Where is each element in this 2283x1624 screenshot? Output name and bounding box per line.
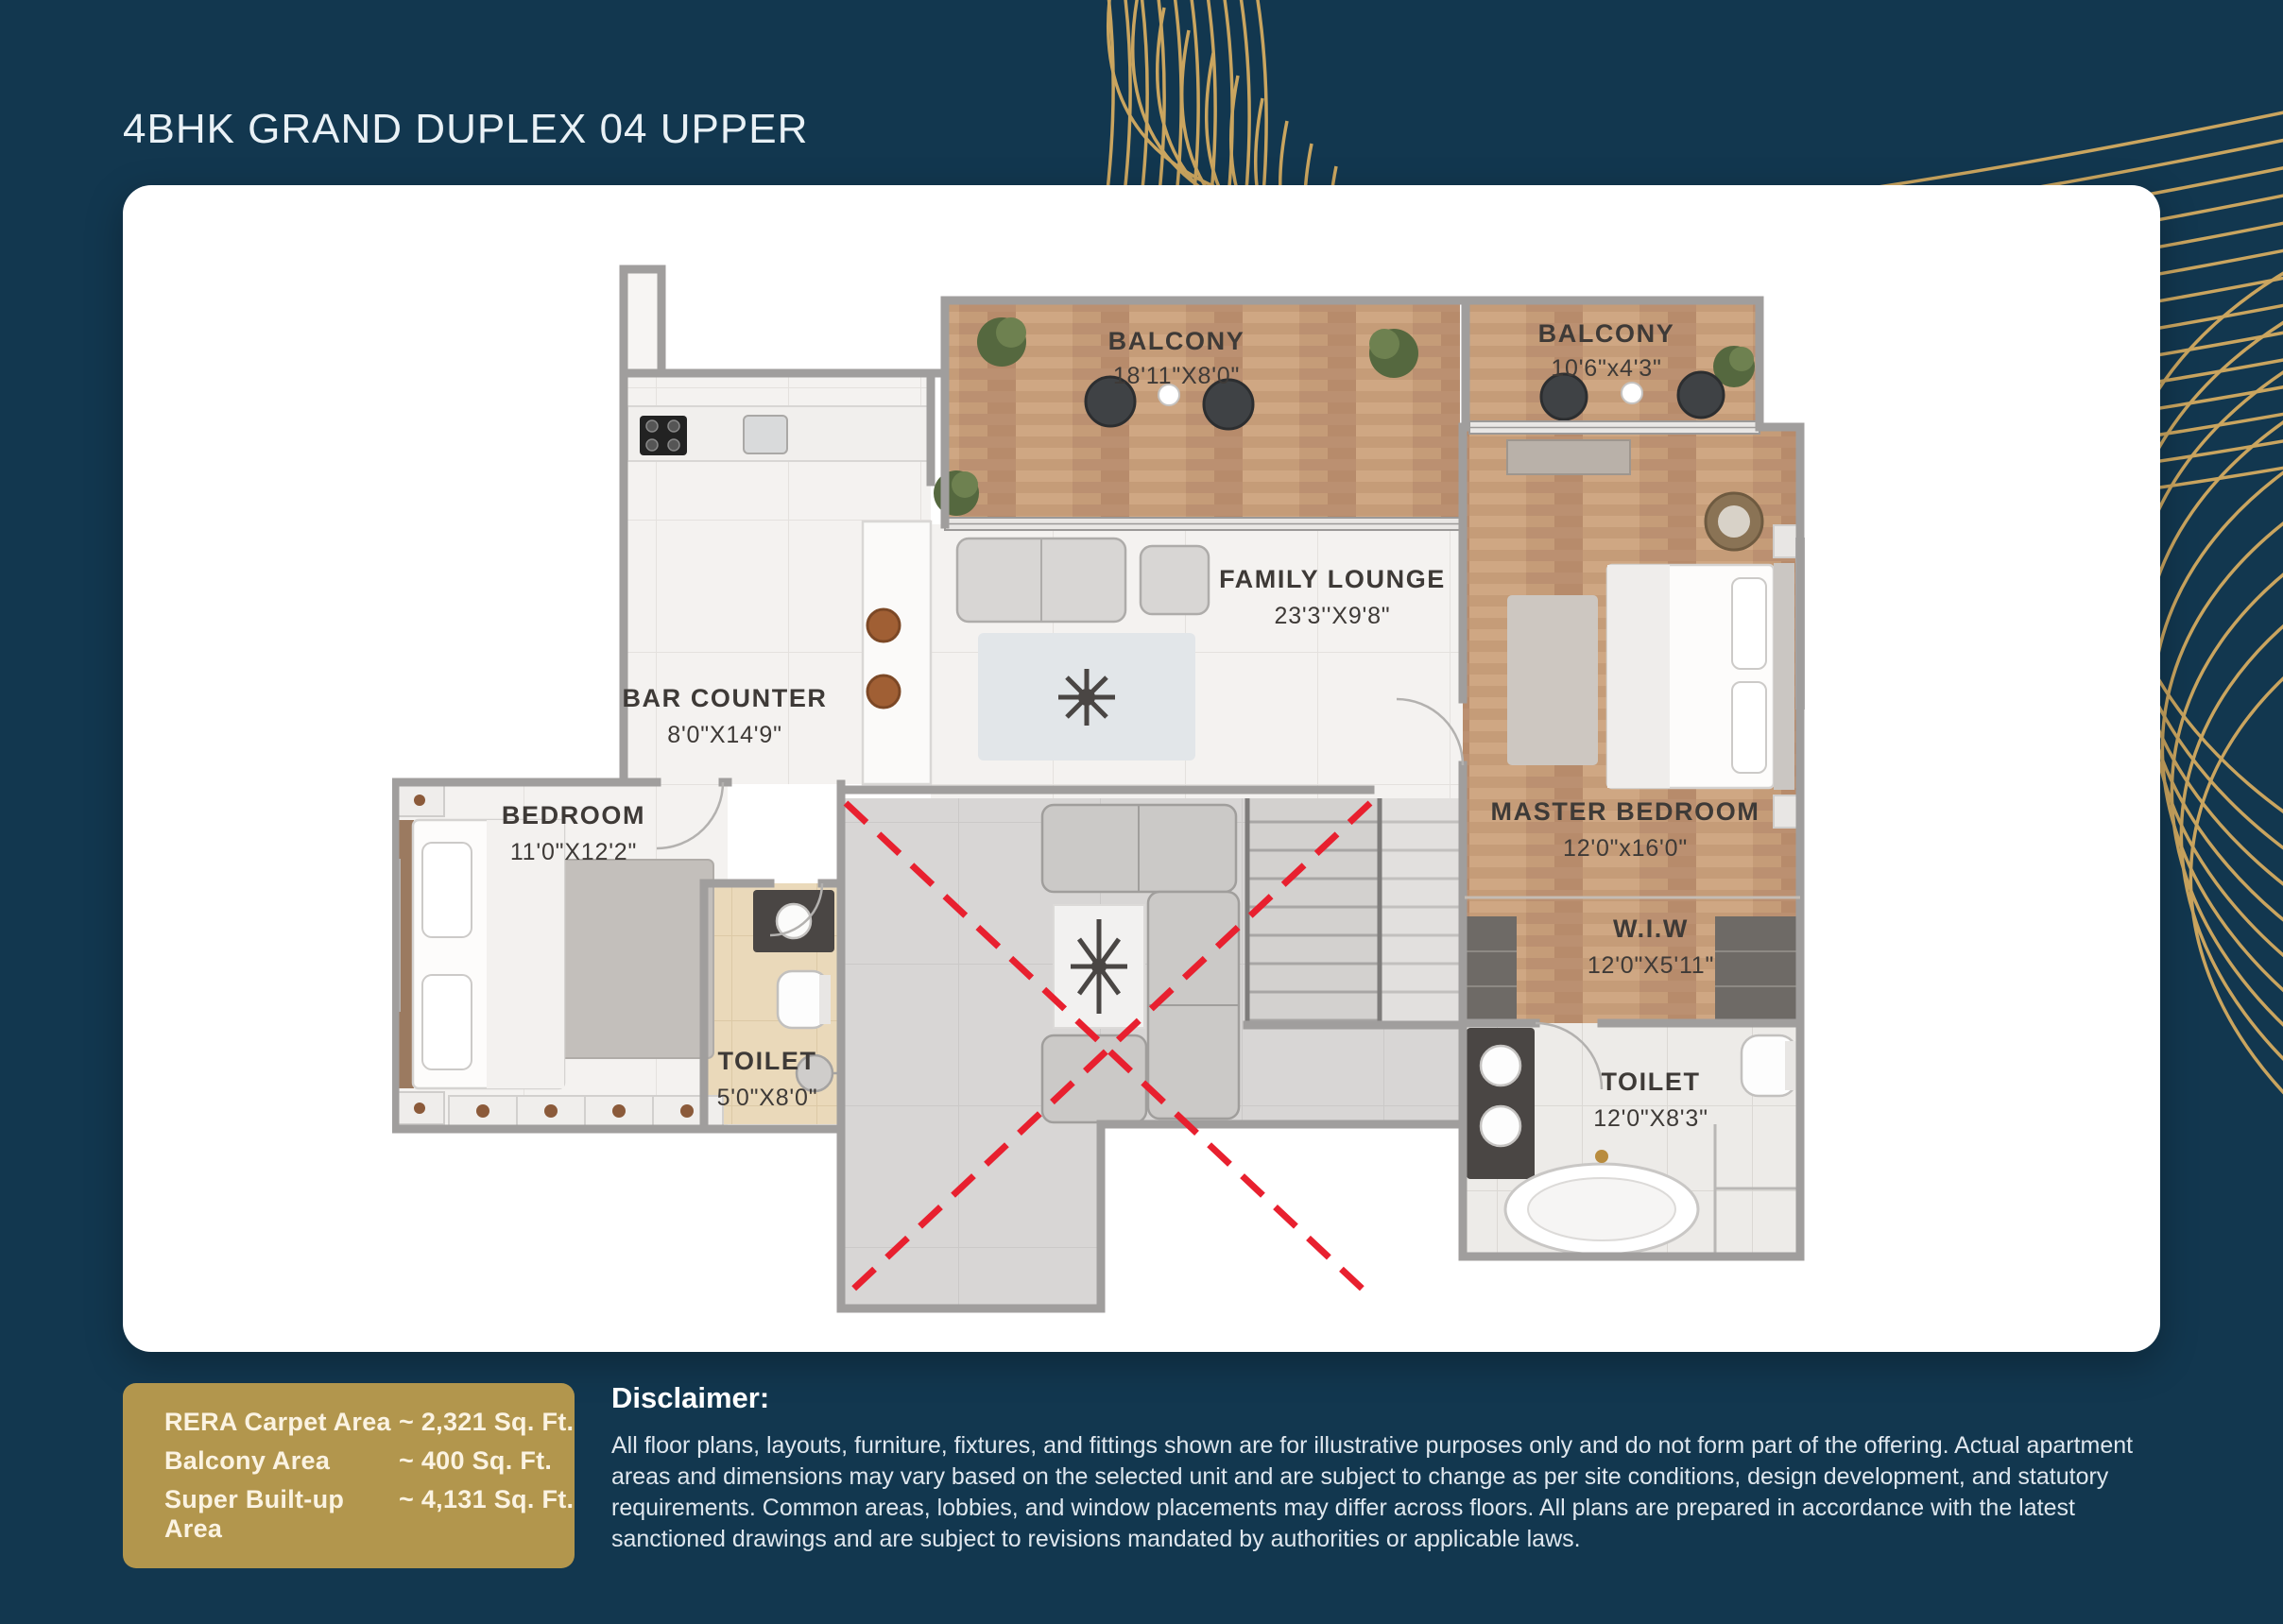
area-value: ~ 400 Sq. Ft. — [399, 1446, 575, 1476]
dims-balcony-1: 18'11"X8'0" — [1113, 363, 1240, 389]
area-label: Balcony Area — [164, 1446, 399, 1476]
label-balcony-1: BALCONY — [1108, 327, 1245, 355]
bar-stool — [867, 609, 900, 641]
label-family-lounge: FAMILY LOUNGE — [1219, 565, 1446, 593]
gold-faucet — [1595, 1150, 1608, 1163]
disclaimer-section: Disclaimer: All floor plans, layouts, fu… — [611, 1381, 2161, 1555]
label-bedroom: BEDROOM — [502, 801, 645, 829]
kitchen-counter — [627, 406, 928, 461]
coffee-table — [1058, 669, 1115, 726]
area-value: ~ 4,131 Sq. Ft. — [399, 1485, 575, 1544]
area-row-rera: RERA Carpet Area ~ 2,321 Sq. Ft. — [164, 1408, 575, 1437]
kitchen-notch — [624, 269, 661, 373]
floor-plan: BALCONY 18'11"X8'0" BALCONY 10'6"x4'3" F… — [392, 255, 1805, 1313]
dims-wiw: 12'0"X5'11" — [1588, 952, 1714, 979]
disclaimer-heading: Disclaimer: — [611, 1381, 2161, 1415]
dims-family-lounge: 23'3''X9'8" — [1275, 603, 1391, 629]
bar-counter-island — [863, 521, 931, 784]
dims-balcony-2: 10'6"x4'3" — [1551, 355, 1661, 382]
area-summary-box: RERA Carpet Area ~ 2,321 Sq. Ft. Balcony… — [123, 1383, 575, 1568]
label-wiw: W.I.W — [1613, 915, 1689, 943]
dims-bar-counter: 8'0"X14'9" — [667, 722, 782, 748]
dims-master-bedroom: 12'0"x16'0" — [1563, 835, 1688, 862]
void-sofa-set — [1042, 805, 1239, 1122]
plant — [977, 317, 1026, 367]
area-value: ~ 2,321 Sq. Ft. — [399, 1408, 575, 1437]
label-master-bedroom: MASTER BEDROOM — [1491, 797, 1760, 826]
area-label: Super Built-up Area — [164, 1485, 399, 1544]
dims-toilet-master: 12'0"X8'3" — [1593, 1105, 1708, 1132]
plant — [934, 470, 979, 516]
rattan-chair — [1706, 493, 1762, 550]
disclaimer-body: All floor plans, layouts, furniture, fix… — [611, 1430, 2161, 1555]
balcony-chair — [1678, 372, 1724, 418]
area-label: RERA Carpet Area — [164, 1408, 399, 1437]
label-toilet-small: TOILET — [717, 1047, 816, 1075]
label-balcony-2: BALCONY — [1538, 319, 1675, 348]
brochure-page: { "page": { "title": "4BHK GRAND DUPLEX … — [0, 0, 2283, 1624]
label-toilet-master: TOILET — [1601, 1068, 1700, 1096]
lounge-sofa-set — [957, 538, 1209, 761]
dims-toilet-small: 5'0"X8'0" — [717, 1085, 818, 1111]
void-tail — [841, 1124, 1101, 1308]
label-bar-counter: BAR COUNTER — [622, 684, 827, 712]
cooktop — [640, 416, 687, 455]
area-row-super-builtup: Super Built-up Area ~ 4,131 Sq. Ft. — [164, 1485, 575, 1544]
kitchen-sink — [744, 416, 787, 453]
plant — [1369, 329, 1418, 378]
area-row-balcony: Balcony Area ~ 400 Sq. Ft. — [164, 1446, 575, 1476]
staircase — [1247, 798, 1460, 1025]
wardrobe — [449, 1096, 723, 1126]
dims-bedroom: 11'0"X12'2" — [510, 839, 637, 865]
balcony-table — [1622, 383, 1642, 403]
floorplan-card: BALCONY 18'11"X8'0" BALCONY 10'6"x4'3" F… — [123, 185, 2160, 1352]
bar-stool — [867, 675, 900, 708]
page-title: 4BHK GRAND DUPLEX 04 UPPER — [123, 106, 808, 153]
